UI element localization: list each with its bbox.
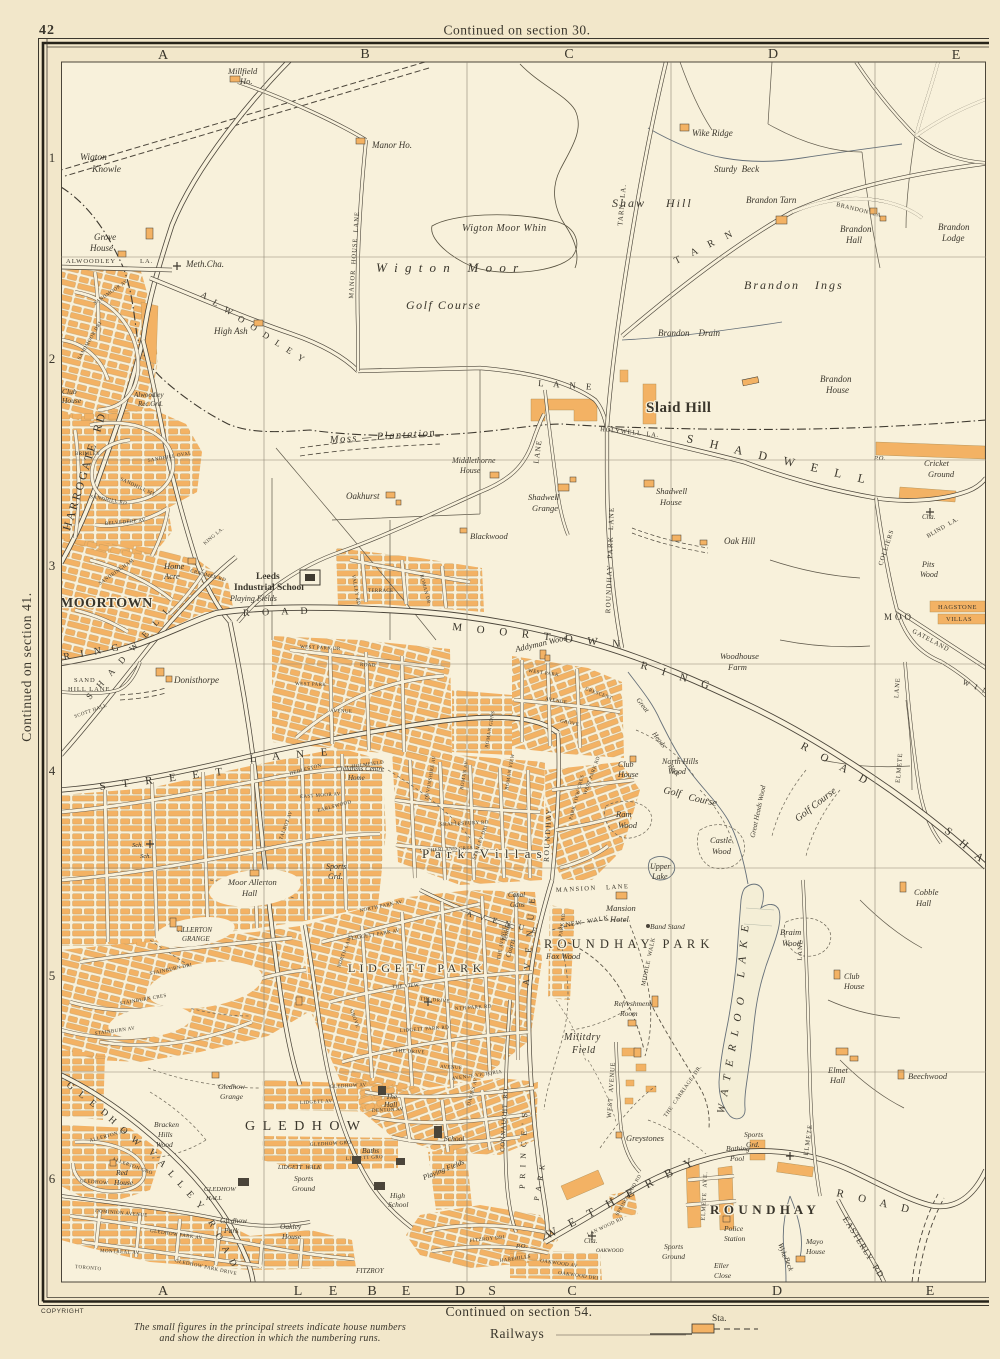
svg-text:Eller: Eller: [713, 1261, 729, 1270]
svg-text:House: House: [113, 1178, 134, 1187]
svg-text:North Hills: North Hills: [661, 757, 698, 766]
svg-text:Playing Fields: Playing Fields: [229, 594, 277, 603]
svg-text:Sports: Sports: [664, 1242, 683, 1251]
svg-text:A: A: [158, 48, 169, 63]
svg-text:Slaid Hill: Slaid Hill: [646, 400, 711, 416]
svg-text:Knowle: Knowle: [91, 165, 121, 175]
svg-text:SAND: SAND: [74, 677, 96, 684]
svg-text:School: School: [388, 1200, 408, 1209]
svg-text:Grange: Grange: [220, 1092, 244, 1101]
svg-text:The small figures in the princ: The small figures in the principal stree…: [134, 1322, 406, 1333]
svg-text:LA.: LA.: [140, 258, 153, 265]
svg-text:Militdry: Militdry: [563, 1032, 601, 1043]
svg-text:Railways: Railways: [490, 1326, 544, 1341]
svg-text:42: 42: [39, 23, 55, 38]
svg-text:Wood: Wood: [920, 570, 939, 579]
svg-text:Hall: Hall: [829, 1075, 846, 1085]
svg-text:Moor Allerton: Moor Allerton: [227, 877, 277, 887]
svg-text:Refreshment: Refreshment: [613, 999, 652, 1008]
svg-text:GLEDHOW: GLEDHOW: [204, 1186, 236, 1193]
svg-text:Police: Police: [723, 1224, 744, 1233]
svg-text:Brandon Tarn: Brandon Tarn: [746, 195, 797, 205]
svg-text:3: 3: [49, 558, 56, 573]
svg-text:OAKWOOD: OAKWOOD: [596, 1248, 624, 1254]
svg-text:Wigton Moor Whin: Wigton Moor Whin: [462, 223, 547, 234]
svg-text:Gledhow: Gledhow: [218, 1082, 245, 1091]
svg-text:Sch.: Sch.: [132, 842, 143, 849]
svg-text:House: House: [89, 243, 113, 253]
svg-text:Lodge: Lodge: [941, 233, 965, 243]
svg-text:Manor Ho.: Manor Ho.: [371, 140, 412, 150]
svg-text:Braim: Braim: [780, 927, 801, 937]
svg-text:Upper: Upper: [650, 862, 671, 871]
svg-text:Ground: Ground: [928, 469, 955, 479]
svg-text:P a r k V i l l a s: P a r k V i l l a s: [422, 846, 543, 861]
svg-text:Oakhurst: Oakhurst: [346, 491, 380, 501]
svg-text:Sturdy Beck: Sturdy Beck: [714, 164, 760, 174]
svg-text:Greystones: Greystones: [626, 1133, 665, 1143]
svg-text:Pool: Pool: [729, 1154, 744, 1163]
svg-text:House: House: [825, 385, 849, 395]
svg-text:Cha.: Cha.: [584, 1237, 598, 1245]
svg-text:2: 2: [49, 351, 56, 366]
svg-text:House: House: [659, 497, 682, 507]
svg-text:Middlethorne: Middlethorne: [451, 456, 496, 465]
svg-text:Continued on section 41.: Continued on section 41.: [19, 592, 34, 741]
svg-text:Donisthorpe: Donisthorpe: [173, 675, 219, 685]
svg-text:Cha.: Cha.: [922, 513, 936, 521]
svg-text:Brandon: Brandon: [820, 374, 852, 384]
svg-text:Club: Club: [844, 972, 860, 981]
svg-text:Mansion: Mansion: [605, 903, 636, 913]
svg-text:Field: Field: [571, 1045, 596, 1056]
svg-text:D: D: [455, 1284, 465, 1299]
svg-text:Grange: Grange: [532, 503, 558, 513]
svg-text:Gdns: Gdns: [510, 901, 525, 909]
svg-text:Sports: Sports: [294, 1174, 313, 1183]
svg-text:HAGSTONE: HAGSTONE: [938, 604, 977, 611]
svg-text:B: B: [360, 47, 369, 62]
svg-text:Station: Station: [724, 1234, 746, 1243]
svg-text:Wood: Wood: [156, 1140, 173, 1149]
svg-text:Wike Ridge: Wike Ridge: [692, 128, 733, 138]
svg-text:Hills: Hills: [157, 1130, 173, 1139]
svg-text:R O U N D H A Y: R O U N D H A Y: [710, 1202, 816, 1217]
svg-text:Cobble: Cobble: [914, 887, 939, 897]
svg-text:Ram: Ram: [615, 809, 632, 819]
svg-text:E: E: [926, 1284, 935, 1299]
svg-text:Ground: Ground: [662, 1252, 685, 1261]
svg-text:Continued on section 30.: Continued on section 30.: [444, 23, 591, 38]
svg-text:ALWOODLEY: ALWOODLEY: [66, 258, 116, 265]
svg-text:Club: Club: [62, 387, 77, 396]
svg-text:Home: Home: [163, 561, 185, 571]
svg-text:FITZROY: FITZROY: [355, 1267, 385, 1275]
svg-text:House: House: [843, 982, 865, 991]
svg-text:A: A: [158, 1284, 169, 1299]
svg-text:MOO: MOO: [884, 612, 914, 622]
svg-text:Childrens Centre: Childrens Centre: [336, 765, 384, 773]
svg-text:Lake: Lake: [651, 872, 668, 881]
svg-text:D: D: [772, 1284, 782, 1299]
svg-text:Baths: Baths: [362, 1146, 379, 1155]
svg-text:Alwoodley: Alwoodley: [133, 391, 164, 399]
svg-text:Blackwood: Blackwood: [470, 531, 509, 541]
svg-text:E: E: [402, 1284, 411, 1299]
svg-text:B: B: [367, 1284, 376, 1299]
svg-text:House: House: [61, 396, 82, 405]
svg-text:L: L: [294, 1284, 303, 1299]
svg-text:D: D: [768, 47, 778, 62]
svg-text:Beechwood: Beechwood: [908, 1071, 948, 1081]
svg-text:W i g t o n M o o r: W i g t o n M o o r: [376, 260, 520, 275]
svg-text:High: High: [389, 1191, 405, 1200]
svg-text:Continued on section 54.: Continued on section 54.: [446, 1304, 593, 1319]
svg-text:C: C: [564, 47, 573, 62]
svg-text:House: House: [617, 770, 639, 779]
svg-text:Rec.Grd.: Rec.Grd.: [137, 400, 163, 408]
svg-text:Leeds: Leeds: [256, 572, 280, 582]
svg-text:Brandon Drain: Brandon Drain: [658, 328, 721, 338]
svg-text:Sta.: Sta.: [712, 1314, 727, 1324]
svg-text:GRANGE: GRANGE: [182, 935, 210, 943]
svg-text:Ho.: Ho.: [239, 76, 253, 86]
svg-text:Canal: Canal: [508, 891, 525, 899]
svg-text:Wigton: Wigton: [80, 153, 107, 163]
svg-text:Golf Course: Golf Course: [406, 298, 482, 312]
svg-text:TERRACE: TERRACE: [368, 589, 394, 594]
svg-text:Grd.: Grd.: [746, 1140, 760, 1149]
svg-text:House: House: [459, 466, 481, 475]
svg-text:P.O.: P.O.: [515, 1243, 527, 1250]
svg-text:Pits: Pits: [921, 560, 934, 569]
svg-text:HILL LANE: HILL LANE: [68, 686, 111, 693]
svg-text:5: 5: [49, 968, 56, 983]
svg-text:Industrial School: Industrial School: [234, 583, 304, 593]
svg-text:Grove: Grove: [94, 232, 116, 242]
svg-text:4: 4: [49, 763, 56, 778]
svg-text:S: S: [488, 1284, 496, 1299]
svg-text:Fox Wood: Fox Wood: [545, 951, 581, 961]
svg-text:C: C: [567, 1284, 576, 1299]
svg-text:AVENUE: AVENUE: [330, 709, 352, 715]
svg-text:R O U N D H A Y P A R K: R O U N D H A Y P A R K: [544, 937, 710, 951]
svg-text:Brandon Ings: Brandon Ings: [744, 278, 844, 292]
svg-text:Ground: Ground: [292, 1184, 315, 1193]
svg-text:Home: Home: [347, 774, 365, 782]
svg-text:6: 6: [49, 1171, 56, 1186]
svg-text:and show the direction in whic: and show the direction in which the numb…: [159, 1333, 380, 1344]
svg-text:ALLERTON: ALLERTON: [177, 926, 212, 934]
svg-text:Hall: Hall: [845, 235, 863, 245]
svg-text:Sports: Sports: [744, 1130, 763, 1139]
svg-text:Oak Hill: Oak Hill: [724, 536, 756, 546]
svg-text:E: E: [952, 48, 961, 63]
svg-text:High Ash: High Ash: [213, 326, 248, 336]
svg-text:L I D G E T T P A R K: L I D G E T T P A R K: [348, 961, 482, 975]
svg-text:Brandon: Brandon: [938, 222, 970, 232]
svg-text:MOORTOWN: MOORTOWN: [60, 596, 153, 611]
svg-text:Bracken: Bracken: [154, 1120, 179, 1129]
svg-text:Band Stand: Band Stand: [650, 922, 685, 931]
svg-text:Sch.: Sch.: [140, 853, 151, 860]
svg-text:Oakley: Oakley: [280, 1222, 302, 1231]
svg-text:Gledhow: Gledhow: [220, 1216, 247, 1225]
svg-text:Millfield: Millfield: [227, 66, 258, 76]
svg-text:E: E: [329, 1284, 338, 1299]
svg-text:Hotel: Hotel: [609, 914, 630, 924]
svg-text:Park: Park: [223, 1226, 239, 1235]
svg-text:Wood: Wood: [712, 846, 732, 856]
svg-text:Wood: Wood: [782, 938, 802, 948]
svg-text:House: House: [805, 1247, 826, 1256]
svg-text:COPYRIGHT: COPYRIGHT: [41, 1308, 84, 1315]
svg-text:Acre: Acre: [163, 571, 180, 581]
svg-text:Meth.Cha.: Meth.Cha.: [185, 259, 224, 269]
svg-text:Shadwell: Shadwell: [528, 492, 560, 502]
svg-text:1: 1: [49, 150, 56, 165]
svg-text:HALL: HALL: [205, 1195, 222, 1202]
svg-text:Close: Close: [714, 1271, 732, 1280]
svg-text:Wood: Wood: [618, 820, 638, 830]
svg-text:House: House: [281, 1232, 302, 1241]
svg-text:Brandon: Brandon: [840, 224, 872, 234]
svg-text:Elmet: Elmet: [827, 1065, 848, 1075]
svg-text:Grd.: Grd.: [328, 872, 343, 881]
svg-text:Hall: Hall: [383, 1100, 397, 1109]
svg-text:VILLAS: VILLAS: [946, 616, 972, 623]
svg-text:Room: Room: [619, 1009, 638, 1018]
svg-text:Hall: Hall: [915, 898, 932, 908]
svg-text:Sports: Sports: [326, 862, 346, 871]
svg-text:Mayo: Mayo: [805, 1237, 823, 1246]
svg-text:School: School: [444, 1134, 464, 1143]
svg-text:LIDGETT WALK: LIDGETT WALK: [277, 1165, 322, 1171]
svg-text:Red: Red: [115, 1168, 128, 1177]
svg-text:Hall: Hall: [241, 888, 258, 898]
svg-text:Cricket: Cricket: [924, 458, 950, 468]
svg-text:G L E D H O W: G L E D H O W: [245, 1119, 362, 1134]
svg-text:Farm: Farm: [727, 662, 747, 672]
svg-text:Woodhouse: Woodhouse: [720, 651, 759, 661]
svg-text:Castle: Castle: [710, 835, 732, 845]
svg-text:Shadwell: Shadwell: [656, 486, 688, 496]
